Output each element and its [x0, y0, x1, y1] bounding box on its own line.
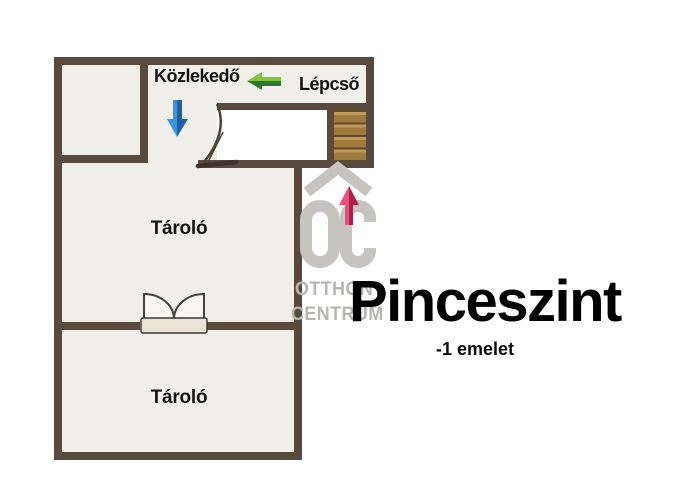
wall-left [54, 57, 62, 460]
page-title: Pinceszint [349, 273, 621, 331]
door-swing-arc [190, 98, 252, 174]
left-arrow-icon [246, 70, 282, 90]
wall-stairs-left [327, 103, 334, 168]
room-label-tarolo-lower: Tároló [63, 388, 295, 409]
wall-divider-left [54, 322, 140, 330]
wall-right-upper [366, 57, 374, 168]
stairs-treads [334, 110, 366, 160]
room-label-tarolo-upper: Tároló [63, 219, 295, 240]
down-arrow-icon [165, 100, 191, 140]
wall-smallroom-right [140, 57, 148, 163]
wall-top [54, 57, 374, 65]
floor-plan-page: OTTHON CENTRUM Közlekedő Lépcső Tároló T… [0, 0, 673, 500]
room-label-lepcso: Lépcső [299, 75, 359, 95]
double-door-symbol [135, 283, 215, 339]
wall-smallroom-bottom [54, 155, 148, 163]
wall-bottom [54, 452, 302, 460]
page-subtitle: -1 emelet [436, 340, 514, 358]
room-label-kozlekedo: Közlekedő [154, 67, 240, 87]
up-arrow-icon [337, 184, 361, 226]
